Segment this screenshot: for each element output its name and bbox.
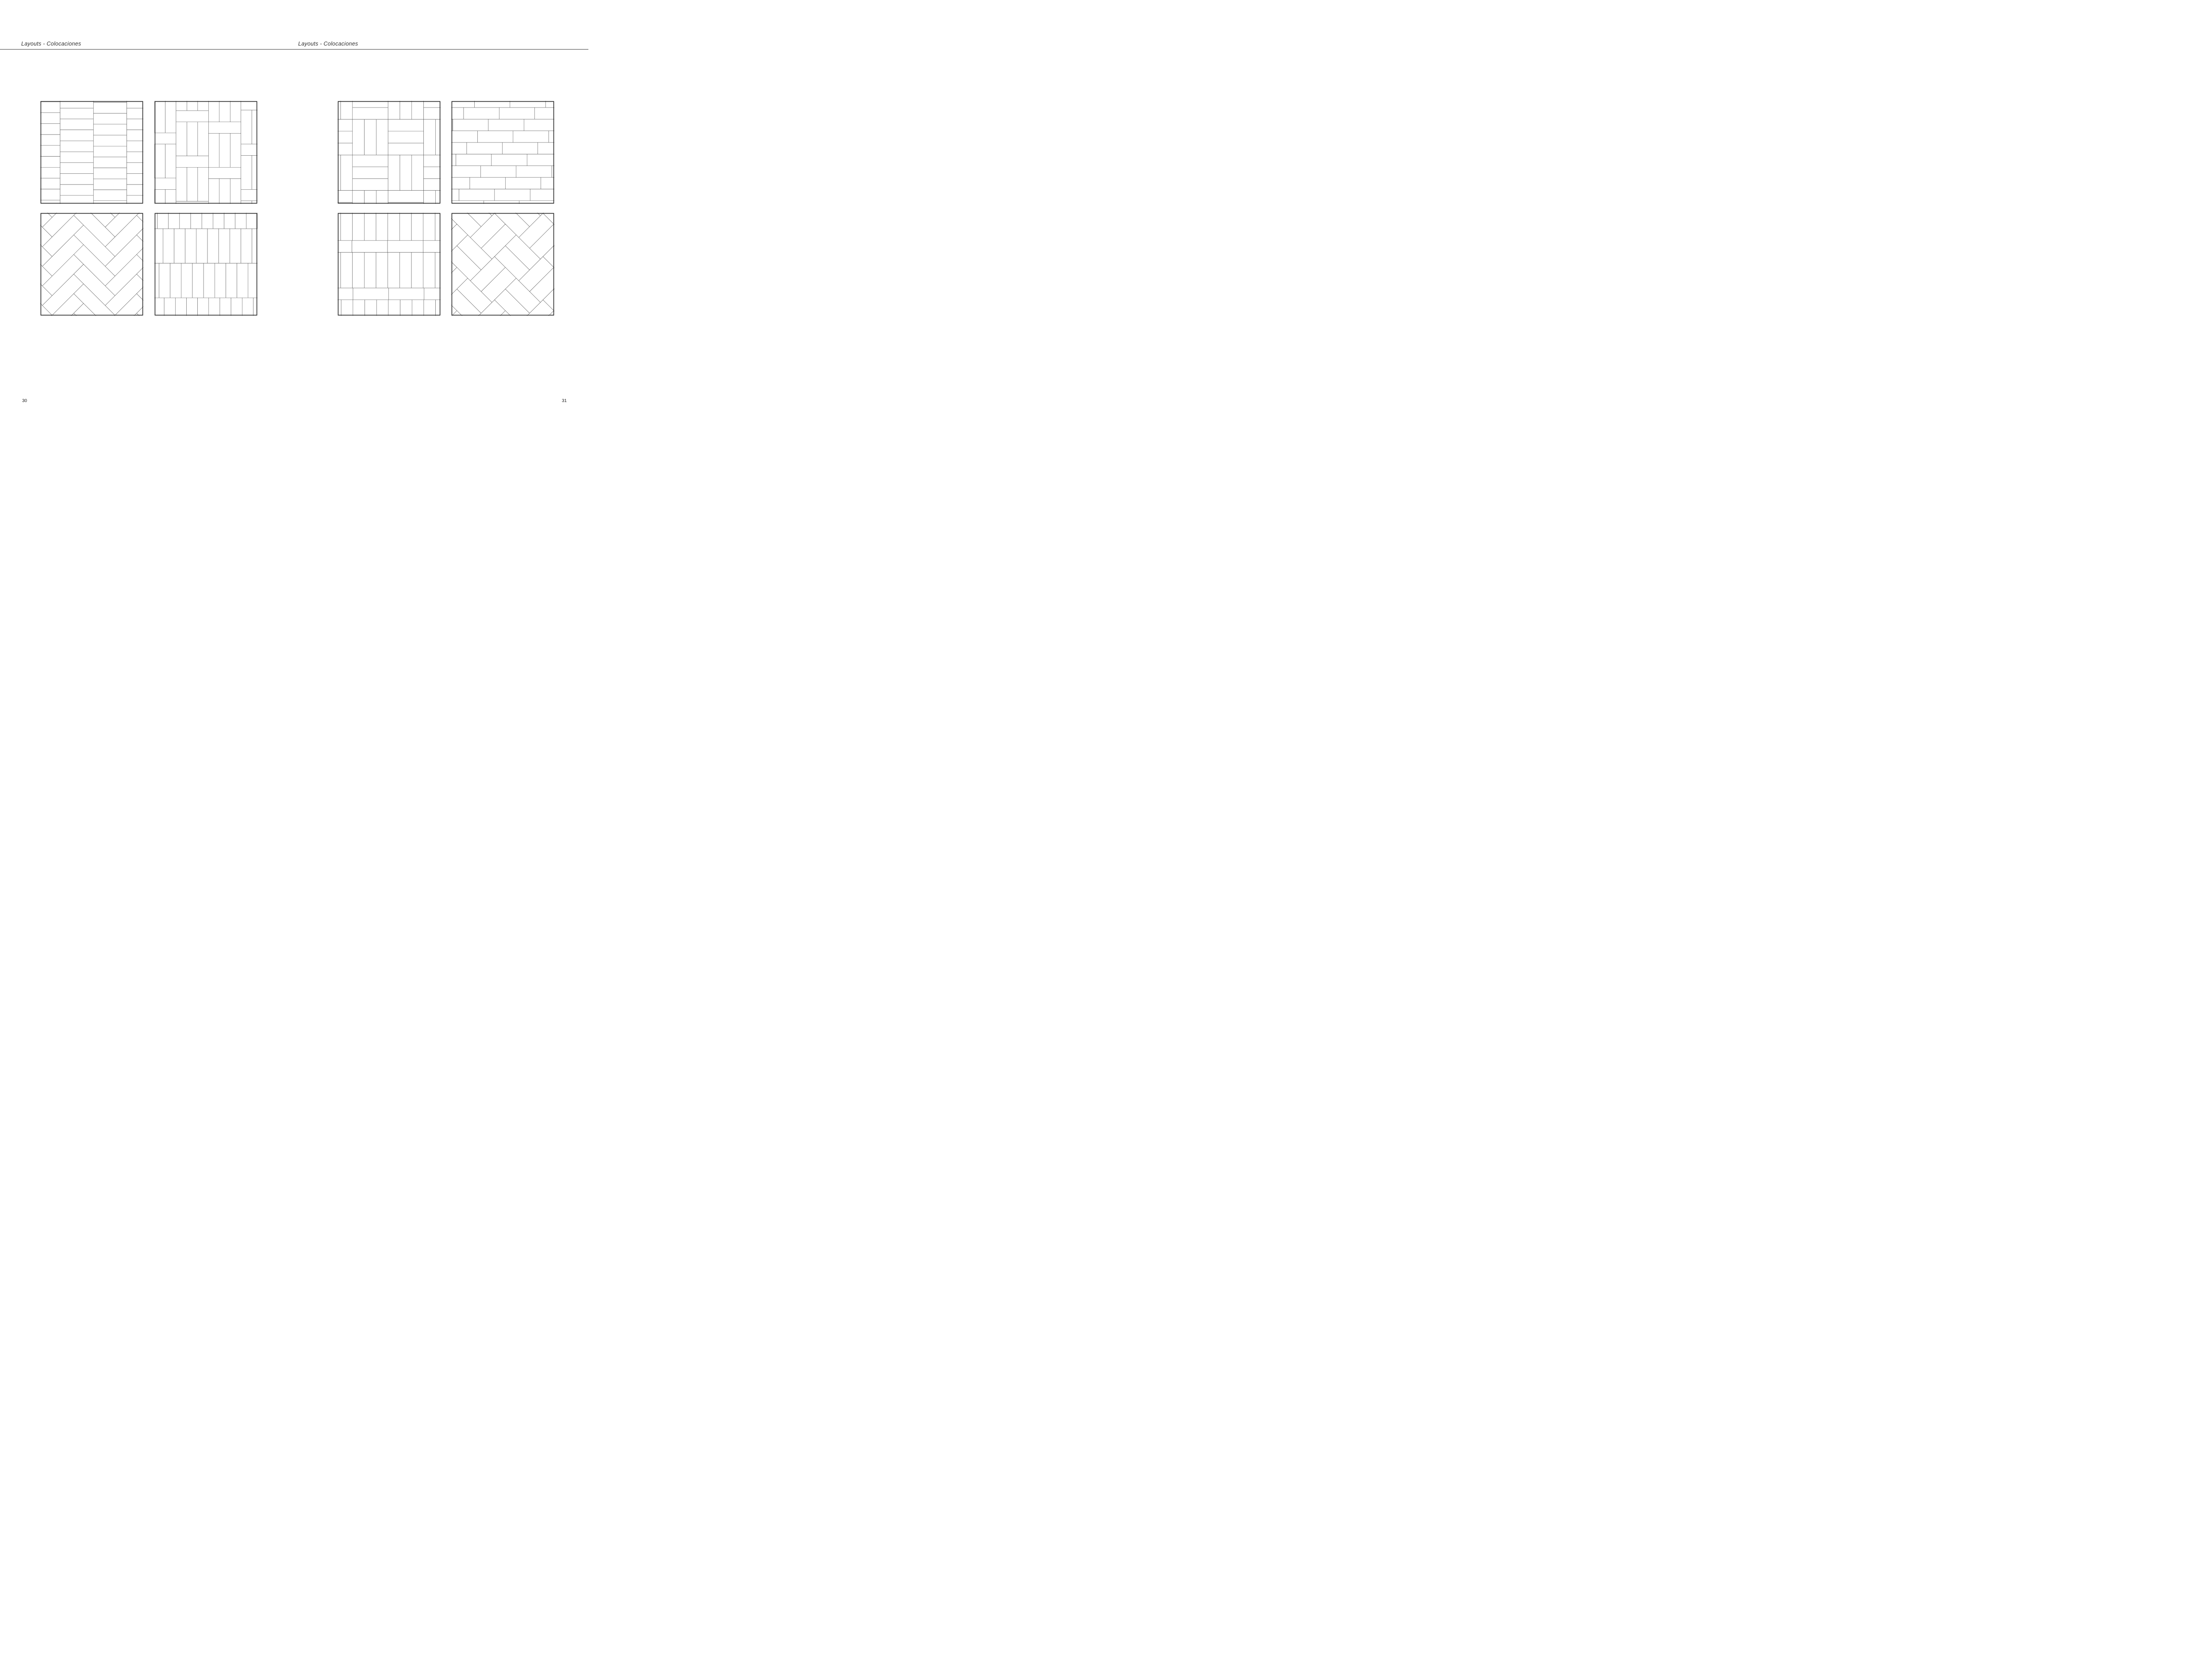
page-number-right: 31 xyxy=(562,399,567,403)
page-header-left: Layouts - Colocaciones xyxy=(21,41,81,47)
page-header-right: Layouts - Colocaciones xyxy=(298,41,358,47)
tile-pattern-offset-vertical-rows xyxy=(154,213,257,316)
tile-pattern-herringbone-45 xyxy=(40,213,143,316)
tile-pattern-double-herringbone-45 xyxy=(451,213,554,316)
page-number-left: 30 xyxy=(22,399,27,403)
tile-pattern-vertical-tiles-with-lintels xyxy=(154,101,257,204)
header-rule xyxy=(0,49,588,50)
catalog-spread: Layouts - Colocaciones Layouts - Colocac… xyxy=(0,0,588,416)
tile-pattern-running-bond xyxy=(451,101,554,204)
tile-pattern-basketweave xyxy=(338,101,441,204)
tile-pattern-offset-stacked-columns xyxy=(40,101,143,204)
tile-pattern-vertical-rows-with-bands xyxy=(338,213,441,316)
